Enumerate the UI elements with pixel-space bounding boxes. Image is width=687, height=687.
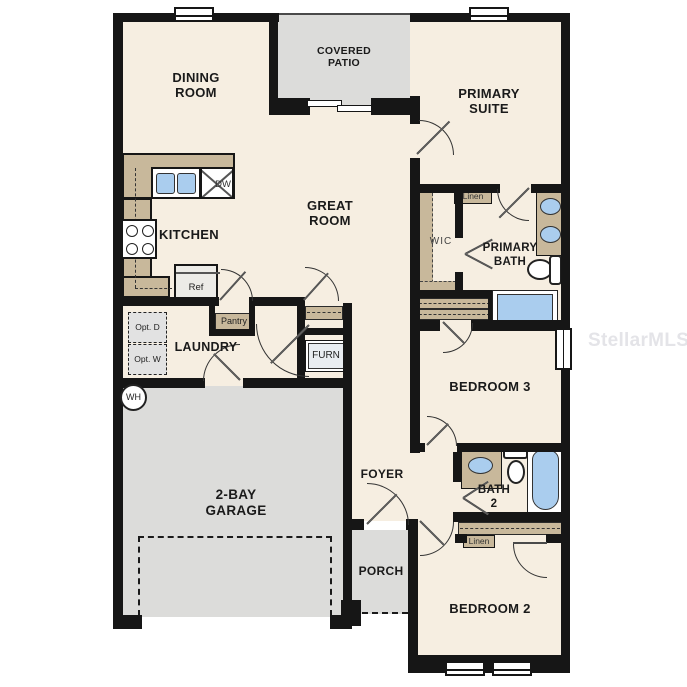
hall-shelf-dash bbox=[414, 303, 490, 304]
window bbox=[445, 661, 485, 676]
wall-suite-bottom bbox=[410, 184, 500, 193]
stellar-mls-watermark: StellarMLS bbox=[588, 330, 687, 352]
wall-bedroom2-left bbox=[408, 519, 418, 673]
burner bbox=[142, 243, 154, 255]
wall-left bbox=[113, 13, 123, 629]
label-dining-room: DINING ROOM bbox=[136, 70, 256, 101]
window-mullion bbox=[176, 15, 212, 17]
vanity-sink bbox=[540, 226, 561, 243]
closet-shelf-dash bbox=[460, 528, 560, 529]
wall-kitchen-laundry bbox=[113, 297, 219, 306]
wall-wic-right bbox=[455, 193, 463, 238]
window bbox=[492, 661, 532, 676]
sink-basin bbox=[177, 173, 196, 194]
wall-bedroom2-bottom bbox=[408, 655, 570, 673]
cabinet-dashed-line bbox=[135, 288, 172, 289]
garage-door-dashed bbox=[138, 536, 332, 616]
label-covered-patio: COVERED PATIO bbox=[282, 45, 406, 70]
wall-patio-left bbox=[269, 13, 278, 107]
wall-foyer-bottom bbox=[343, 519, 364, 530]
label-garage: 2-BAY GARAGE bbox=[176, 487, 296, 519]
furnace: FURN bbox=[305, 340, 347, 372]
bath2-toilet-bowl bbox=[507, 460, 525, 484]
window-mullion bbox=[447, 669, 483, 671]
label-foyer: FOYER bbox=[332, 467, 432, 481]
wall-wic-bottom bbox=[410, 290, 492, 298]
wall-bath2-left bbox=[453, 452, 462, 482]
porch-post bbox=[341, 600, 361, 626]
label-primary-suite: PRIMARY SUITE bbox=[429, 86, 549, 117]
label-great-room: GREAT ROOM bbox=[270, 198, 390, 229]
optional-dryer: Opt. D bbox=[128, 312, 167, 343]
linen-hall-label: Linen bbox=[463, 536, 495, 547]
sliding-door-panel bbox=[337, 105, 372, 112]
wall-patio-bottom bbox=[269, 98, 310, 115]
dishwasher: DW bbox=[200, 167, 234, 199]
vanity-sink bbox=[540, 198, 561, 215]
sink-basin bbox=[156, 173, 175, 194]
label-bath-2: BATH 2 bbox=[444, 484, 544, 511]
wall-bedroom3-bottom bbox=[410, 443, 425, 452]
window-mullion bbox=[471, 15, 507, 17]
water-heater: WH bbox=[120, 384, 147, 411]
wall-wic-right bbox=[455, 272, 463, 292]
window-mullion bbox=[494, 669, 530, 671]
burner bbox=[126, 243, 138, 255]
wall-corridor-right bbox=[410, 158, 420, 453]
wall-garage-bottom bbox=[113, 615, 142, 629]
wall-closet-front bbox=[546, 534, 570, 543]
primary-shower bbox=[497, 294, 553, 322]
kitchen-sink bbox=[151, 167, 201, 199]
label-laundry: LAUNDRY bbox=[146, 340, 266, 355]
window-mullion bbox=[563, 330, 565, 368]
coat-shelf-dash bbox=[307, 312, 341, 313]
bath2-sink bbox=[468, 457, 493, 474]
dishwasher-label: DW bbox=[210, 177, 234, 193]
label-bedroom-3: BEDROOM 3 bbox=[429, 379, 551, 394]
window bbox=[555, 328, 572, 370]
label-porch: PORCH bbox=[331, 564, 431, 578]
label-bedroom-2: BEDROOM 2 bbox=[429, 601, 551, 616]
pantry-label: Pantry bbox=[215, 314, 253, 329]
wall-suite-bottom bbox=[531, 184, 570, 193]
wall-bedroom3-bottom bbox=[457, 443, 570, 452]
refrigerator-label: Ref bbox=[176, 278, 216, 298]
wall-bath2-bottom bbox=[453, 512, 570, 522]
label-kitchen: KITCHEN bbox=[129, 227, 249, 242]
door-leaf-bedroom2-closet bbox=[513, 542, 547, 544]
wall-bedroom3-top bbox=[410, 320, 440, 331]
fridge-handle-line bbox=[176, 272, 220, 274]
wall-garage-top bbox=[243, 378, 352, 388]
window bbox=[469, 7, 509, 22]
kitchen-counter-corner bbox=[122, 276, 170, 298]
wall-garage-right bbox=[343, 383, 352, 623]
coat-closet-shelf bbox=[305, 306, 343, 320]
floor-plan: DW Ref Linen Pantry Linen Opt. D Opt. W … bbox=[0, 0, 687, 687]
label-primary-bath: PRIMARY BATH bbox=[455, 242, 565, 269]
wall-closet-front bbox=[455, 534, 467, 543]
wall-pantry-bottom bbox=[209, 329, 255, 336]
wall-closet-right bbox=[343, 303, 352, 383]
closet-shelf-dash bbox=[414, 314, 490, 315]
window bbox=[174, 7, 214, 22]
